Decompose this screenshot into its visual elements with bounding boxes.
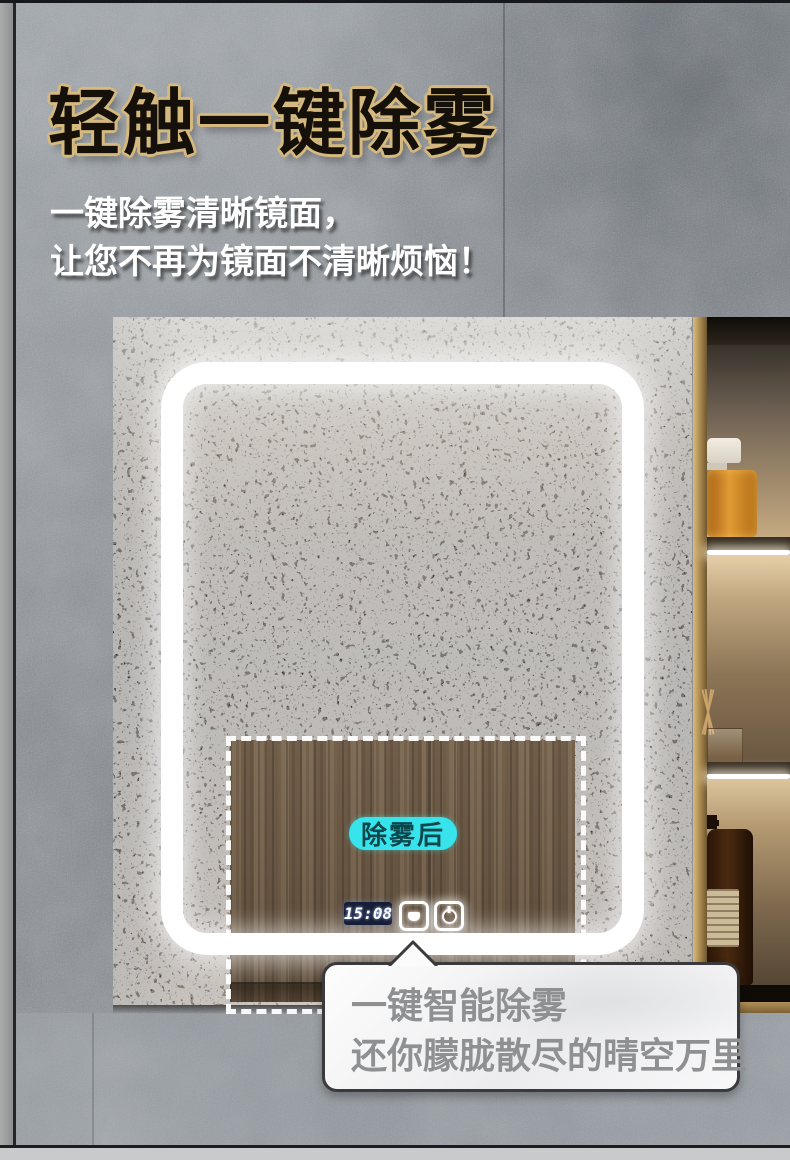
subtitle-line-2: 让您不再为镜面不清晰烦恼！	[50, 238, 492, 286]
cabinet-shelf	[707, 537, 790, 550]
top-border-line	[0, 0, 790, 3]
cabinet-interior	[707, 317, 790, 1013]
soap-bottle-label	[707, 889, 739, 947]
cabinet-ceiling	[707, 317, 790, 345]
power-icon	[442, 909, 457, 924]
wall-corner-strip	[0, 0, 16, 1148]
next-section-strip	[0, 1145, 790, 1160]
defog-icon	[408, 912, 420, 921]
led-mirror: 除雾后 15:08	[113, 317, 692, 1005]
reed-diffuser-jar	[707, 728, 743, 764]
callout-line-2: 还你朦胧散尽的晴空万里	[351, 1031, 737, 1081]
perfume-bottle	[707, 470, 757, 537]
cabinet-frame	[693, 317, 707, 1013]
defog-status-label: 除雾后	[349, 817, 457, 850]
soap-pump-spout	[707, 820, 719, 826]
bathroom-cabinet	[693, 317, 790, 1013]
tile-seam	[503, 3, 505, 317]
mirror-clock-display: 15:08	[344, 902, 392, 925]
product-detail-banner: 轻触一键除雾 一键除雾清晰镜面， 让您不再为镜面不清晰烦恼！	[0, 0, 790, 1160]
callout-bubble: 一键智能除雾 还你朦胧散尽的晴空万里	[322, 962, 740, 1092]
subtitle-line-1: 一键除雾清晰镜面，	[50, 190, 492, 238]
page-title: 轻触一键除雾	[48, 64, 498, 169]
callout-line-1: 一键智能除雾	[351, 981, 737, 1031]
perfume-bottle-neck	[707, 463, 727, 470]
callout-pointer	[386, 938, 440, 966]
defog-touch-button	[399, 901, 429, 931]
perfume-bottle-cap	[707, 438, 741, 463]
cabinet-shelf	[707, 762, 790, 774]
subtitle: 一键除雾清晰镜面， 让您不再为镜面不清晰烦恼！	[50, 190, 492, 286]
power-touch-button	[434, 901, 464, 931]
